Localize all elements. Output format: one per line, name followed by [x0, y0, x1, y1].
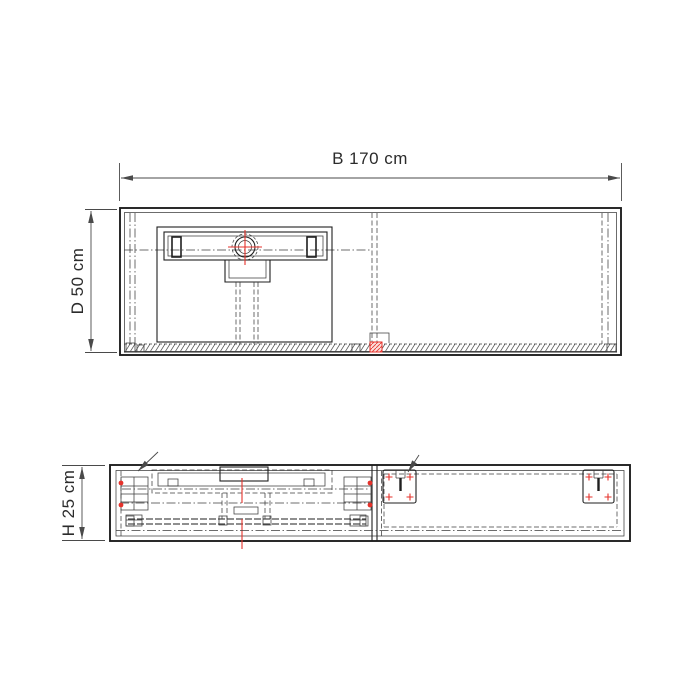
width-dimension-label: B 170 cm — [332, 149, 408, 168]
wall-bracket-left — [383, 470, 416, 503]
overflow-housing — [220, 467, 268, 481]
washbasin-top — [157, 227, 332, 344]
drain-outlet-marker — [370, 342, 382, 352]
screw-cross — [605, 474, 612, 481]
overflow-slot-right — [307, 237, 316, 257]
overflow-slot-left — [172, 237, 181, 257]
drawing-canvas: B 170 cm D 50 cm H 25 cm — [0, 0, 700, 700]
wall-bracket-right — [583, 470, 614, 503]
screw-cross — [407, 494, 414, 501]
technical-drawing: B 170 cm D 50 cm H 25 cm — [0, 0, 700, 700]
section-divider-top — [372, 213, 377, 344]
screw-mark — [368, 503, 373, 508]
depth-dimension-label: D 50 cm — [68, 248, 87, 315]
top-view — [120, 208, 621, 355]
screw-mark — [368, 481, 373, 486]
screw-cross — [586, 474, 593, 481]
screw-cross — [386, 494, 393, 501]
drawer-rail — [126, 516, 368, 526]
screw-cross — [386, 474, 393, 481]
screw-cross — [586, 494, 593, 501]
screw-mark — [119, 503, 124, 508]
height-dimension-label: H 25 cm — [59, 470, 78, 537]
siphon-detail — [234, 507, 258, 514]
dimension-height: H 25 cm — [59, 466, 105, 541]
screw-mark — [119, 481, 124, 486]
dimension-width: B 170 cm — [120, 149, 622, 201]
section-divider-front — [372, 465, 382, 541]
screw-cross — [605, 494, 612, 501]
leader-arrow-slide — [138, 452, 158, 471]
drain-recess — [225, 260, 270, 282]
screw-cross — [407, 474, 414, 481]
front-view — [110, 452, 630, 549]
dimension-depth: D 50 cm — [68, 210, 117, 353]
